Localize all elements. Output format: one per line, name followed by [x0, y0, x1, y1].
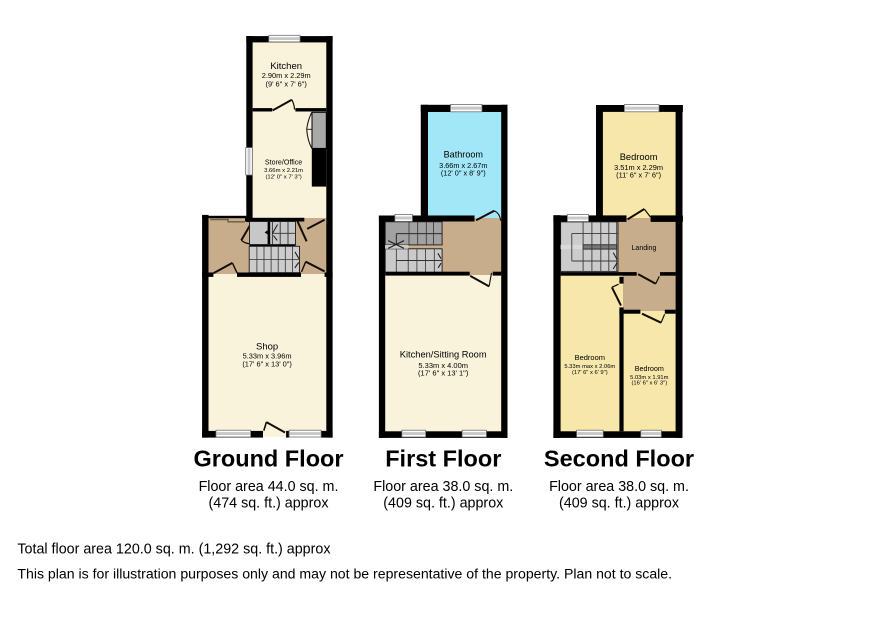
svg-text:Store/Office: Store/Office [265, 158, 302, 166]
svg-text:This plan is for illustration: This plan is for illustration purposes o… [17, 566, 672, 582]
svg-text:(12' 0" x 7' 3"): (12' 0" x 7' 3") [265, 175, 301, 181]
svg-text:Ground Floor: Ground Floor [193, 445, 343, 471]
svg-text:(17' 6" x 13' 1"): (17' 6" x 13' 1") [418, 368, 469, 377]
svg-text:(474 sq. ft.) approx: (474 sq. ft.) approx [209, 496, 329, 512]
svg-text:3.66m x 2.21m: 3.66m x 2.21m [264, 168, 303, 174]
svg-text:(11' 6" x 7' 6"): (11' 6" x 7' 6") [616, 171, 661, 180]
svg-text:(17' 6" x 6' 9"): (17' 6" x 6' 9") [572, 370, 608, 376]
svg-text:(12' 0" x 8' 9"): (12' 0" x 8' 9") [441, 169, 486, 178]
svg-text:Bedroom: Bedroom [620, 152, 658, 162]
svg-text:First Floor: First Floor [385, 445, 501, 471]
svg-text:(17' 6" x 13' 0"): (17' 6" x 13' 0") [242, 359, 292, 368]
svg-text:(409 sq. ft.) approx: (409 sq. ft.) approx [559, 496, 679, 512]
svg-text:Second Floor: Second Floor [544, 445, 694, 471]
svg-text:Landing: Landing [632, 245, 657, 252]
svg-text:Bedroom: Bedroom [575, 353, 605, 362]
svg-text:(9' 6" x 7' 6"): (9' 6" x 7' 6") [266, 79, 307, 88]
svg-text:Total floor area 120.0 sq. m.: Total floor area 120.0 sq. m. (1,292 sq.… [17, 541, 330, 557]
svg-text:Bathroom: Bathroom [444, 150, 483, 160]
svg-text:(409 sq. ft.) approx: (409 sq. ft.) approx [383, 496, 503, 512]
svg-text:Kitchen/Sitting Room: Kitchen/Sitting Room [400, 350, 487, 360]
svg-text:Floor area 38.0 sq. m.: Floor area 38.0 sq. m. [549, 479, 689, 495]
svg-text:(16' 6" x 6' 3"): (16' 6" x 6' 3") [631, 381, 667, 387]
svg-text:Floor area 44.0 sq. m.: Floor area 44.0 sq. m. [199, 479, 339, 495]
svg-text:Floor area 38.0 sq. m.: Floor area 38.0 sq. m. [373, 479, 513, 495]
svg-text:Bedroom: Bedroom [635, 364, 664, 373]
